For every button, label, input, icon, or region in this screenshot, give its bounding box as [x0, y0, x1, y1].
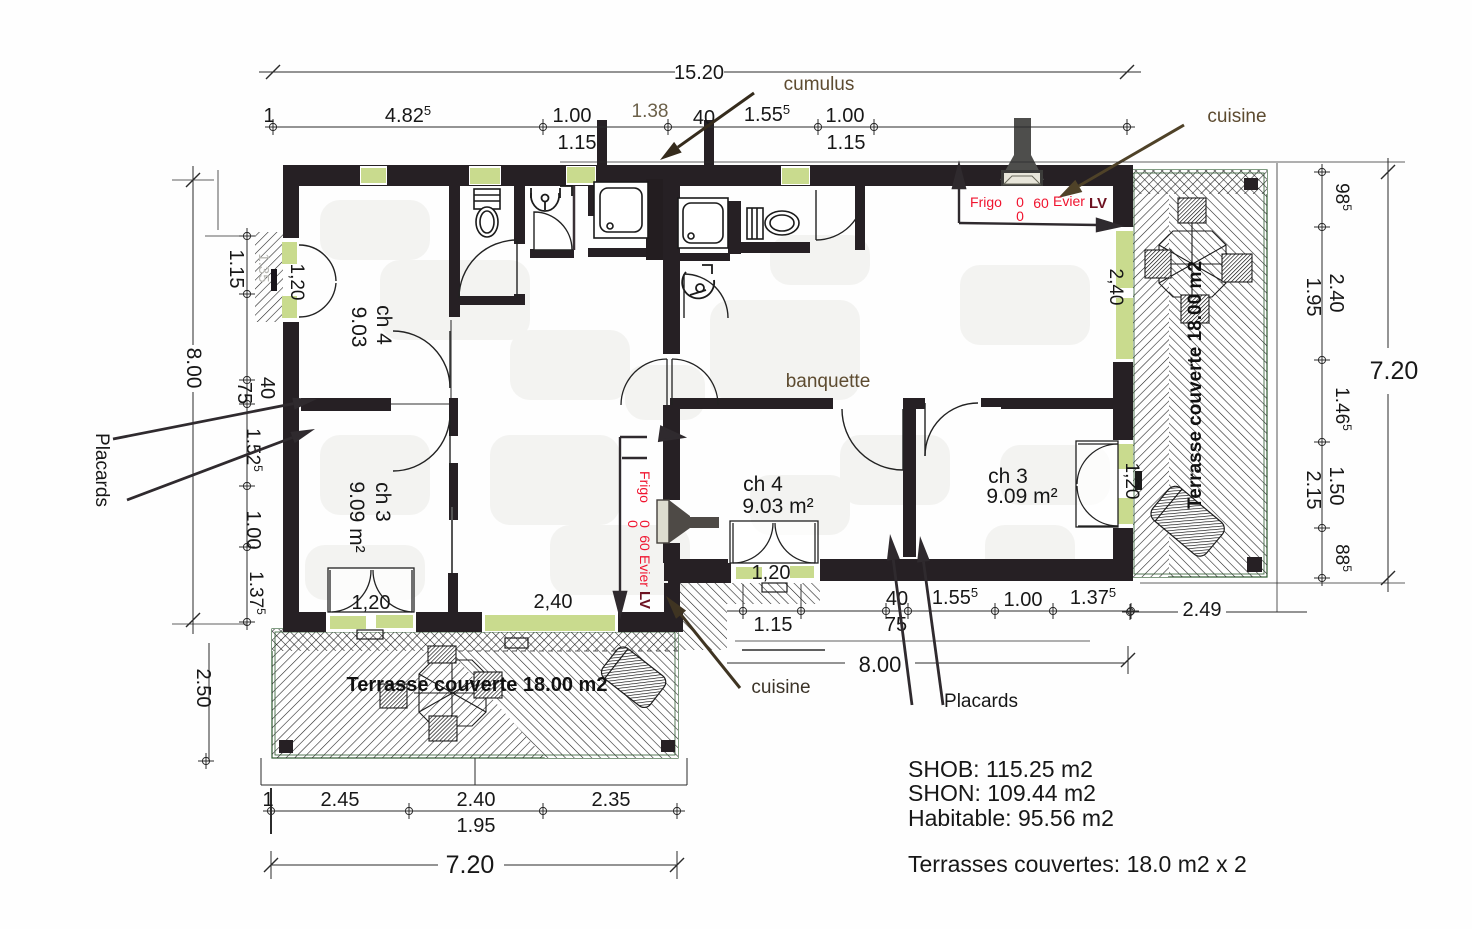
svg-text:1.15: 1.15 — [827, 132, 866, 154]
svg-text:15.20: 15.20 — [674, 62, 724, 84]
svg-text:cumulus: cumulus — [784, 74, 855, 95]
svg-text:60: 60 — [1033, 195, 1049, 211]
svg-text:Frigo: Frigo — [637, 471, 653, 503]
svg-text:1.15: 1.15 — [558, 132, 597, 154]
svg-text:ch 4: ch 4 — [743, 473, 783, 496]
svg-text:1.95: 1.95 — [457, 815, 496, 837]
svg-text:1: 1 — [263, 105, 274, 127]
svg-text:1.50: 1.50 — [1325, 467, 1347, 506]
svg-text:1,20: 1,20 — [752, 562, 791, 584]
svg-text:ch 4: ch 4 — [372, 305, 395, 345]
svg-text:7.20: 7.20 — [1370, 357, 1419, 385]
svg-text:1: 1 — [262, 789, 273, 811]
svg-text:Placards: Placards — [944, 691, 1018, 712]
svg-text:2.40: 2.40 — [1325, 274, 1347, 313]
svg-text:9.09 m²: 9.09 m² — [345, 481, 368, 552]
svg-text:1.35: 1.35 — [255, 253, 272, 282]
svg-text:9.03: 9.03 — [347, 307, 370, 348]
svg-text:1.00: 1.00 — [1004, 589, 1043, 611]
svg-text:1,20: 1,20 — [1121, 463, 1142, 500]
svg-text:2,40: 2,40 — [534, 591, 573, 613]
svg-text:1.38: 1.38 — [632, 101, 669, 122]
svg-text:0: 0 — [1016, 208, 1024, 224]
svg-text:2.35: 2.35 — [592, 789, 631, 811]
svg-text:8.00: 8.00 — [182, 348, 205, 389]
svg-text:9.09 m²: 9.09 m² — [986, 485, 1057, 508]
svg-text:2.45: 2.45 — [321, 789, 360, 811]
svg-text:7.20: 7.20 — [446, 851, 495, 879]
svg-text:Frigo: Frigo — [970, 194, 1002, 210]
svg-text:LV: LV — [636, 591, 653, 609]
svg-text:2.15: 2.15 — [1302, 471, 1324, 510]
svg-text:40: 40 — [256, 377, 278, 399]
svg-text:1.00: 1.00 — [826, 105, 865, 127]
svg-text:Terrasse couverte 18.00 m2: Terrasse couverte 18.00 m2 — [1185, 261, 1206, 509]
svg-text:1,20: 1,20 — [352, 592, 391, 614]
svg-text:60: 60 — [637, 535, 653, 551]
svg-text:Terrasses couvertes: 18.0 m2 x: Terrasses couvertes: 18.0 m2 x 2 — [908, 851, 1247, 877]
svg-text:1.95: 1.95 — [1302, 278, 1324, 317]
svg-text:0: 0 — [637, 520, 653, 528]
svg-text:75: 75 — [233, 382, 255, 404]
svg-text:Evier: Evier — [637, 555, 653, 587]
svg-text:Habitable: 95.56 m2: Habitable: 95.56 m2 — [908, 805, 1114, 831]
svg-text:9.03 m²: 9.03 m² — [742, 495, 813, 518]
svg-text:1.00: 1.00 — [553, 105, 592, 127]
svg-text:2.49: 2.49 — [1183, 599, 1222, 621]
svg-text:2,40: 2,40 — [1105, 269, 1126, 306]
svg-text:1,20: 1,20 — [286, 264, 307, 301]
svg-text:cuisine: cuisine — [751, 677, 810, 698]
svg-text:2.50: 2.50 — [192, 669, 214, 708]
svg-text:8.00: 8.00 — [859, 652, 902, 677]
svg-text:ch 3: ch 3 — [371, 482, 394, 522]
svg-text:LV: LV — [1089, 195, 1107, 212]
svg-text:cuisine: cuisine — [1207, 106, 1266, 127]
svg-text:1.15: 1.15 — [225, 250, 247, 289]
svg-text:1.00: 1.00 — [242, 511, 264, 550]
svg-text:SHOB: 115.25 m2: SHOB: 115.25 m2 — [908, 756, 1093, 782]
svg-text:2.40: 2.40 — [457, 789, 496, 811]
svg-text:Placards: Placards — [91, 433, 112, 507]
svg-text:40: 40 — [693, 107, 715, 129]
svg-text:1.15: 1.15 — [754, 614, 793, 636]
svg-text:Terrasse couverte 18.00 m2: Terrasse couverte 18.00 m2 — [347, 674, 608, 696]
svg-text:SHON: 109.44 m2: SHON: 109.44 m2 — [908, 780, 1096, 806]
svg-text:banquette: banquette — [786, 371, 871, 392]
svg-text:Evier: Evier — [1053, 193, 1085, 209]
